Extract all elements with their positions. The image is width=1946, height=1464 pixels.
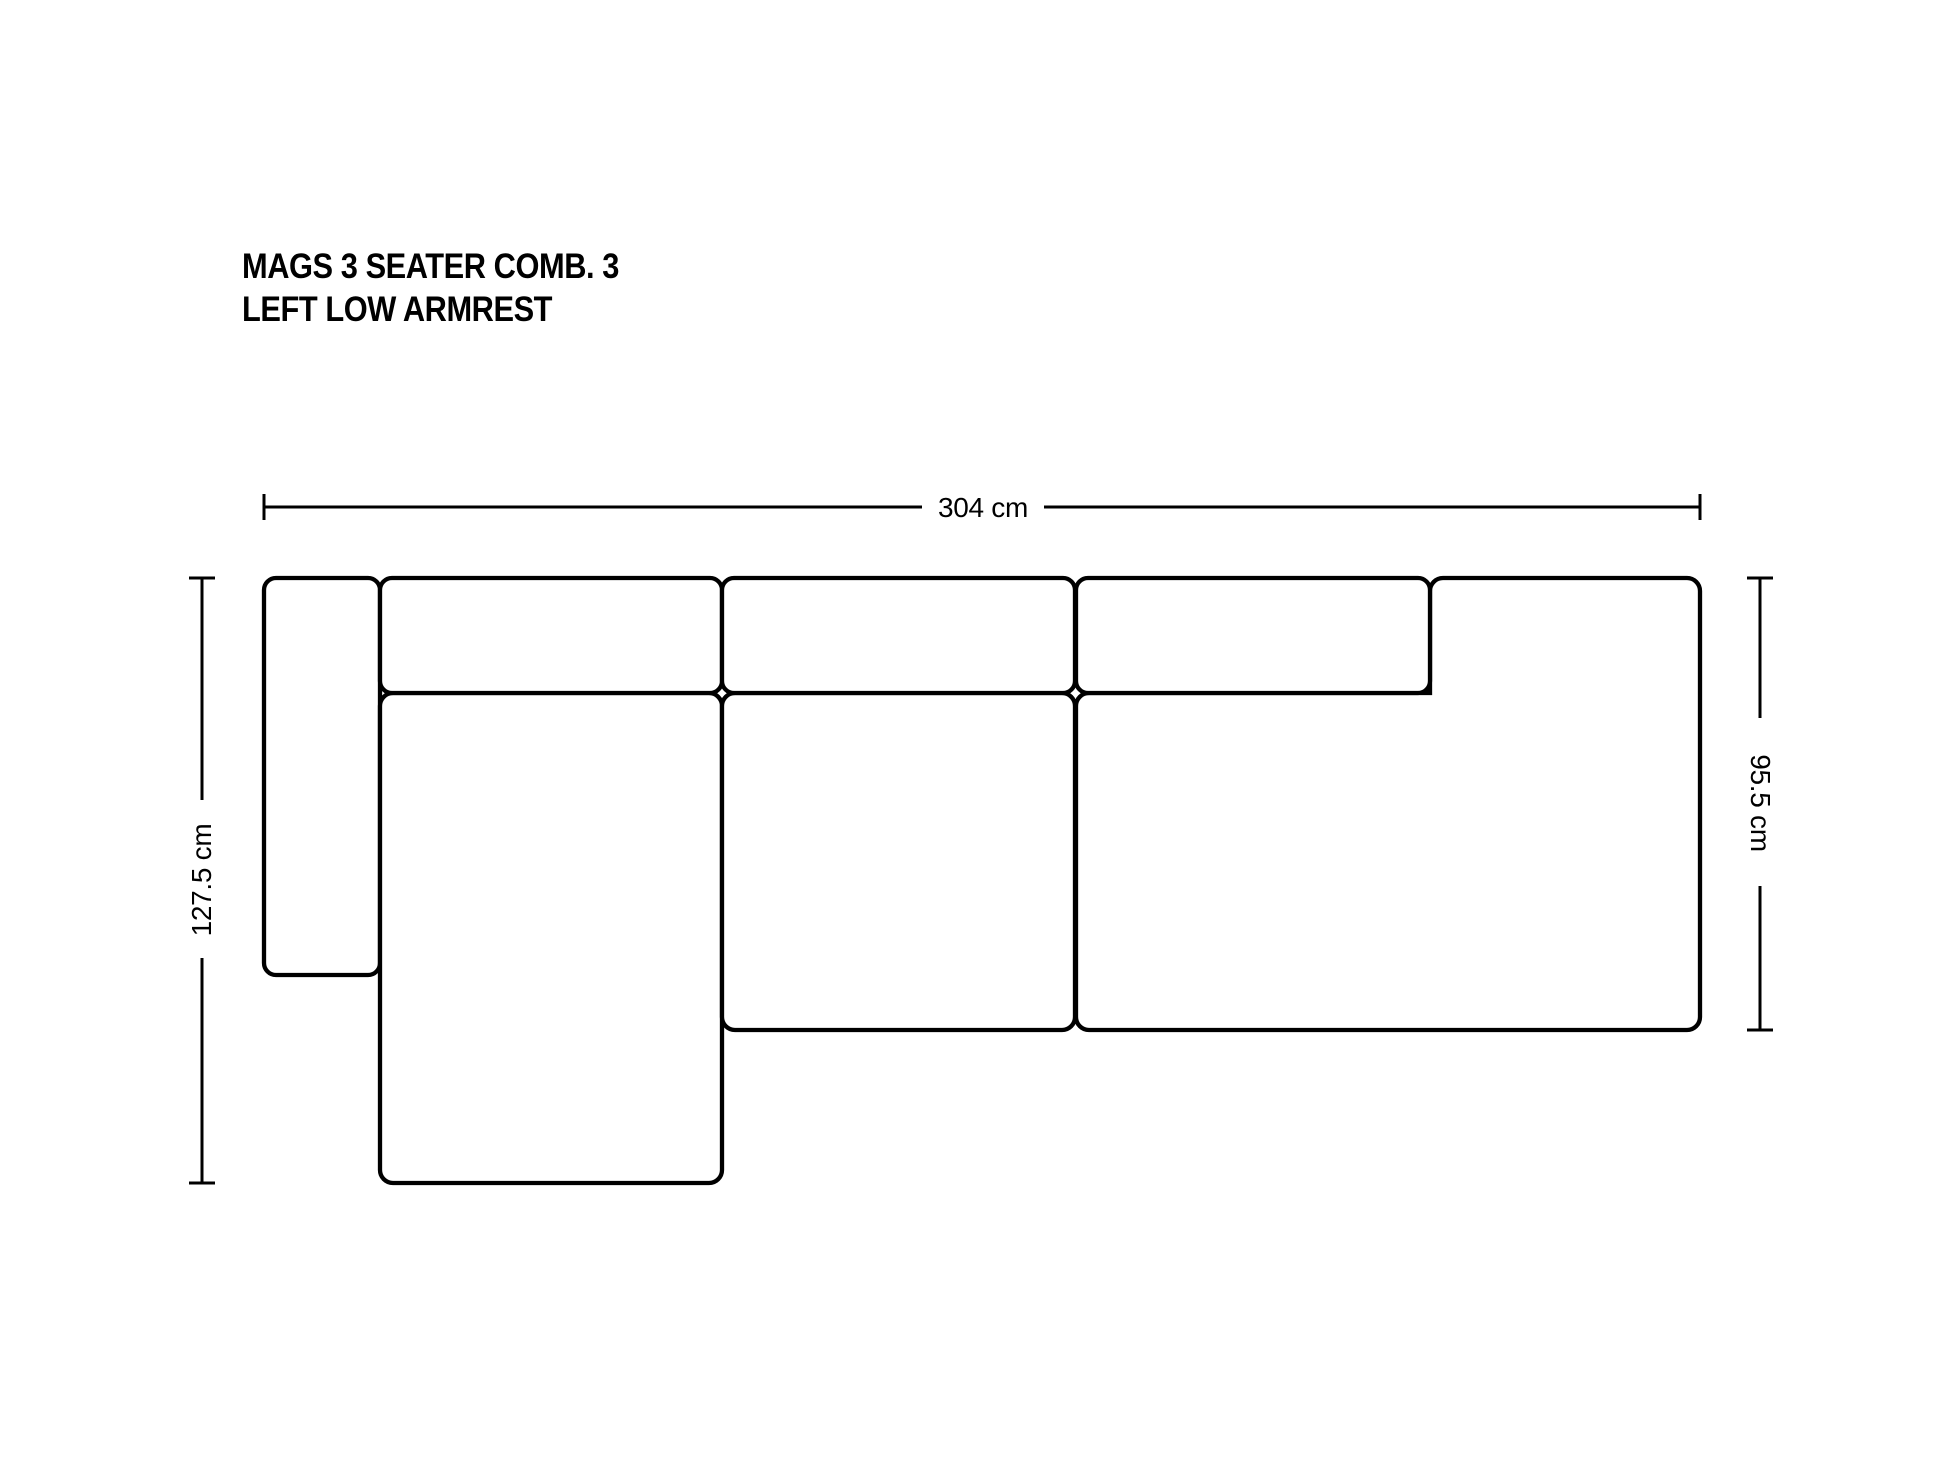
chaise-seat xyxy=(380,693,722,1183)
backrest-cushion-3 xyxy=(1076,578,1430,693)
sofa-modules xyxy=(264,578,1700,1183)
page: MAGS 3 SEATER COMB. 3 LEFT LOW ARMREST 3… xyxy=(0,0,1946,1464)
right-depth-dimension-label: 95.5 cm xyxy=(1745,754,1776,852)
middle-seat xyxy=(722,693,1075,1030)
backrest-cushion-1 xyxy=(380,578,722,693)
left-low-armrest xyxy=(264,578,380,975)
sofa-dimension-diagram: 304 cm 127.5 cm 95.5 cm xyxy=(0,0,1946,1464)
left-depth-dimension-label: 127.5 cm xyxy=(186,824,217,937)
width-dimension-label: 304 cm xyxy=(938,492,1028,523)
backrest-cushion-2 xyxy=(722,578,1075,693)
